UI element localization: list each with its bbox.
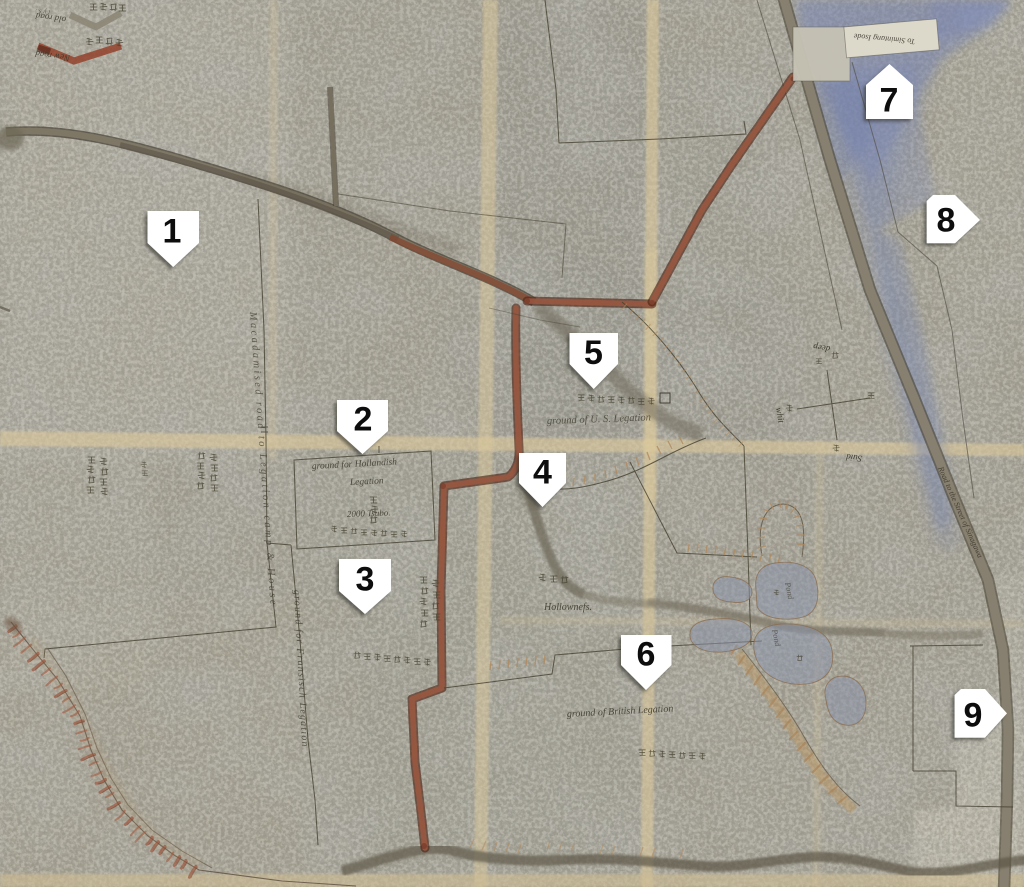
svg-text:5: 5 [584,334,603,372]
svg-text:Legation: Legation [349,476,385,488]
svg-text:Suid: Suid [845,452,863,464]
svg-text:Hollownefs.: Hollownefs. [543,602,592,613]
svg-text:3: 3 [356,561,375,599]
svg-text:t y s..: t y s.. [35,7,51,16]
svg-text:2000 Tsubo.: 2000 Tsubo. [347,507,391,519]
svg-text:2: 2 [354,401,373,439]
svg-text:6: 6 [637,636,656,674]
svg-text:9: 9 [964,697,983,735]
svg-text:1: 1 [163,213,182,251]
svg-text:4: 4 [533,454,552,492]
svg-text:7: 7 [880,82,899,120]
svg-text:8: 8 [937,202,956,240]
